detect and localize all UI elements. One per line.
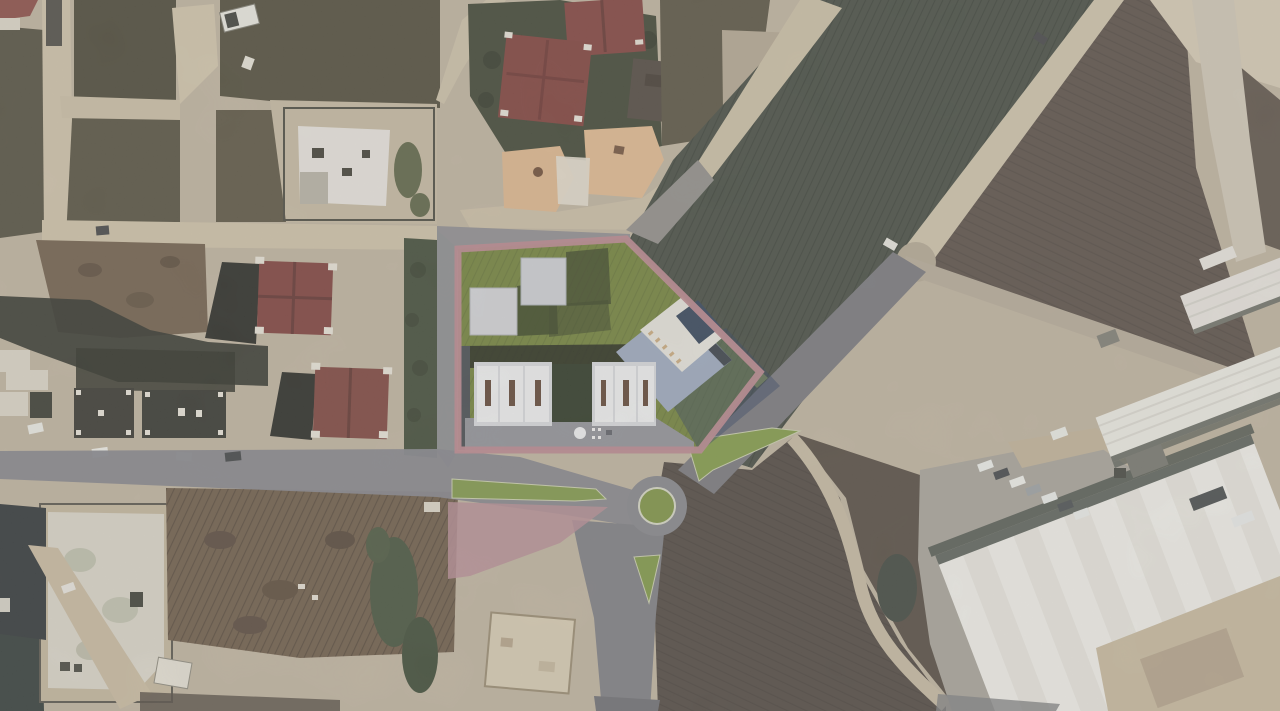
satellite-composite-view <box>0 0 1280 711</box>
photo-cloud-overlay <box>0 0 1280 711</box>
aerial-scene <box>0 0 1280 711</box>
scene-root <box>0 0 1280 711</box>
